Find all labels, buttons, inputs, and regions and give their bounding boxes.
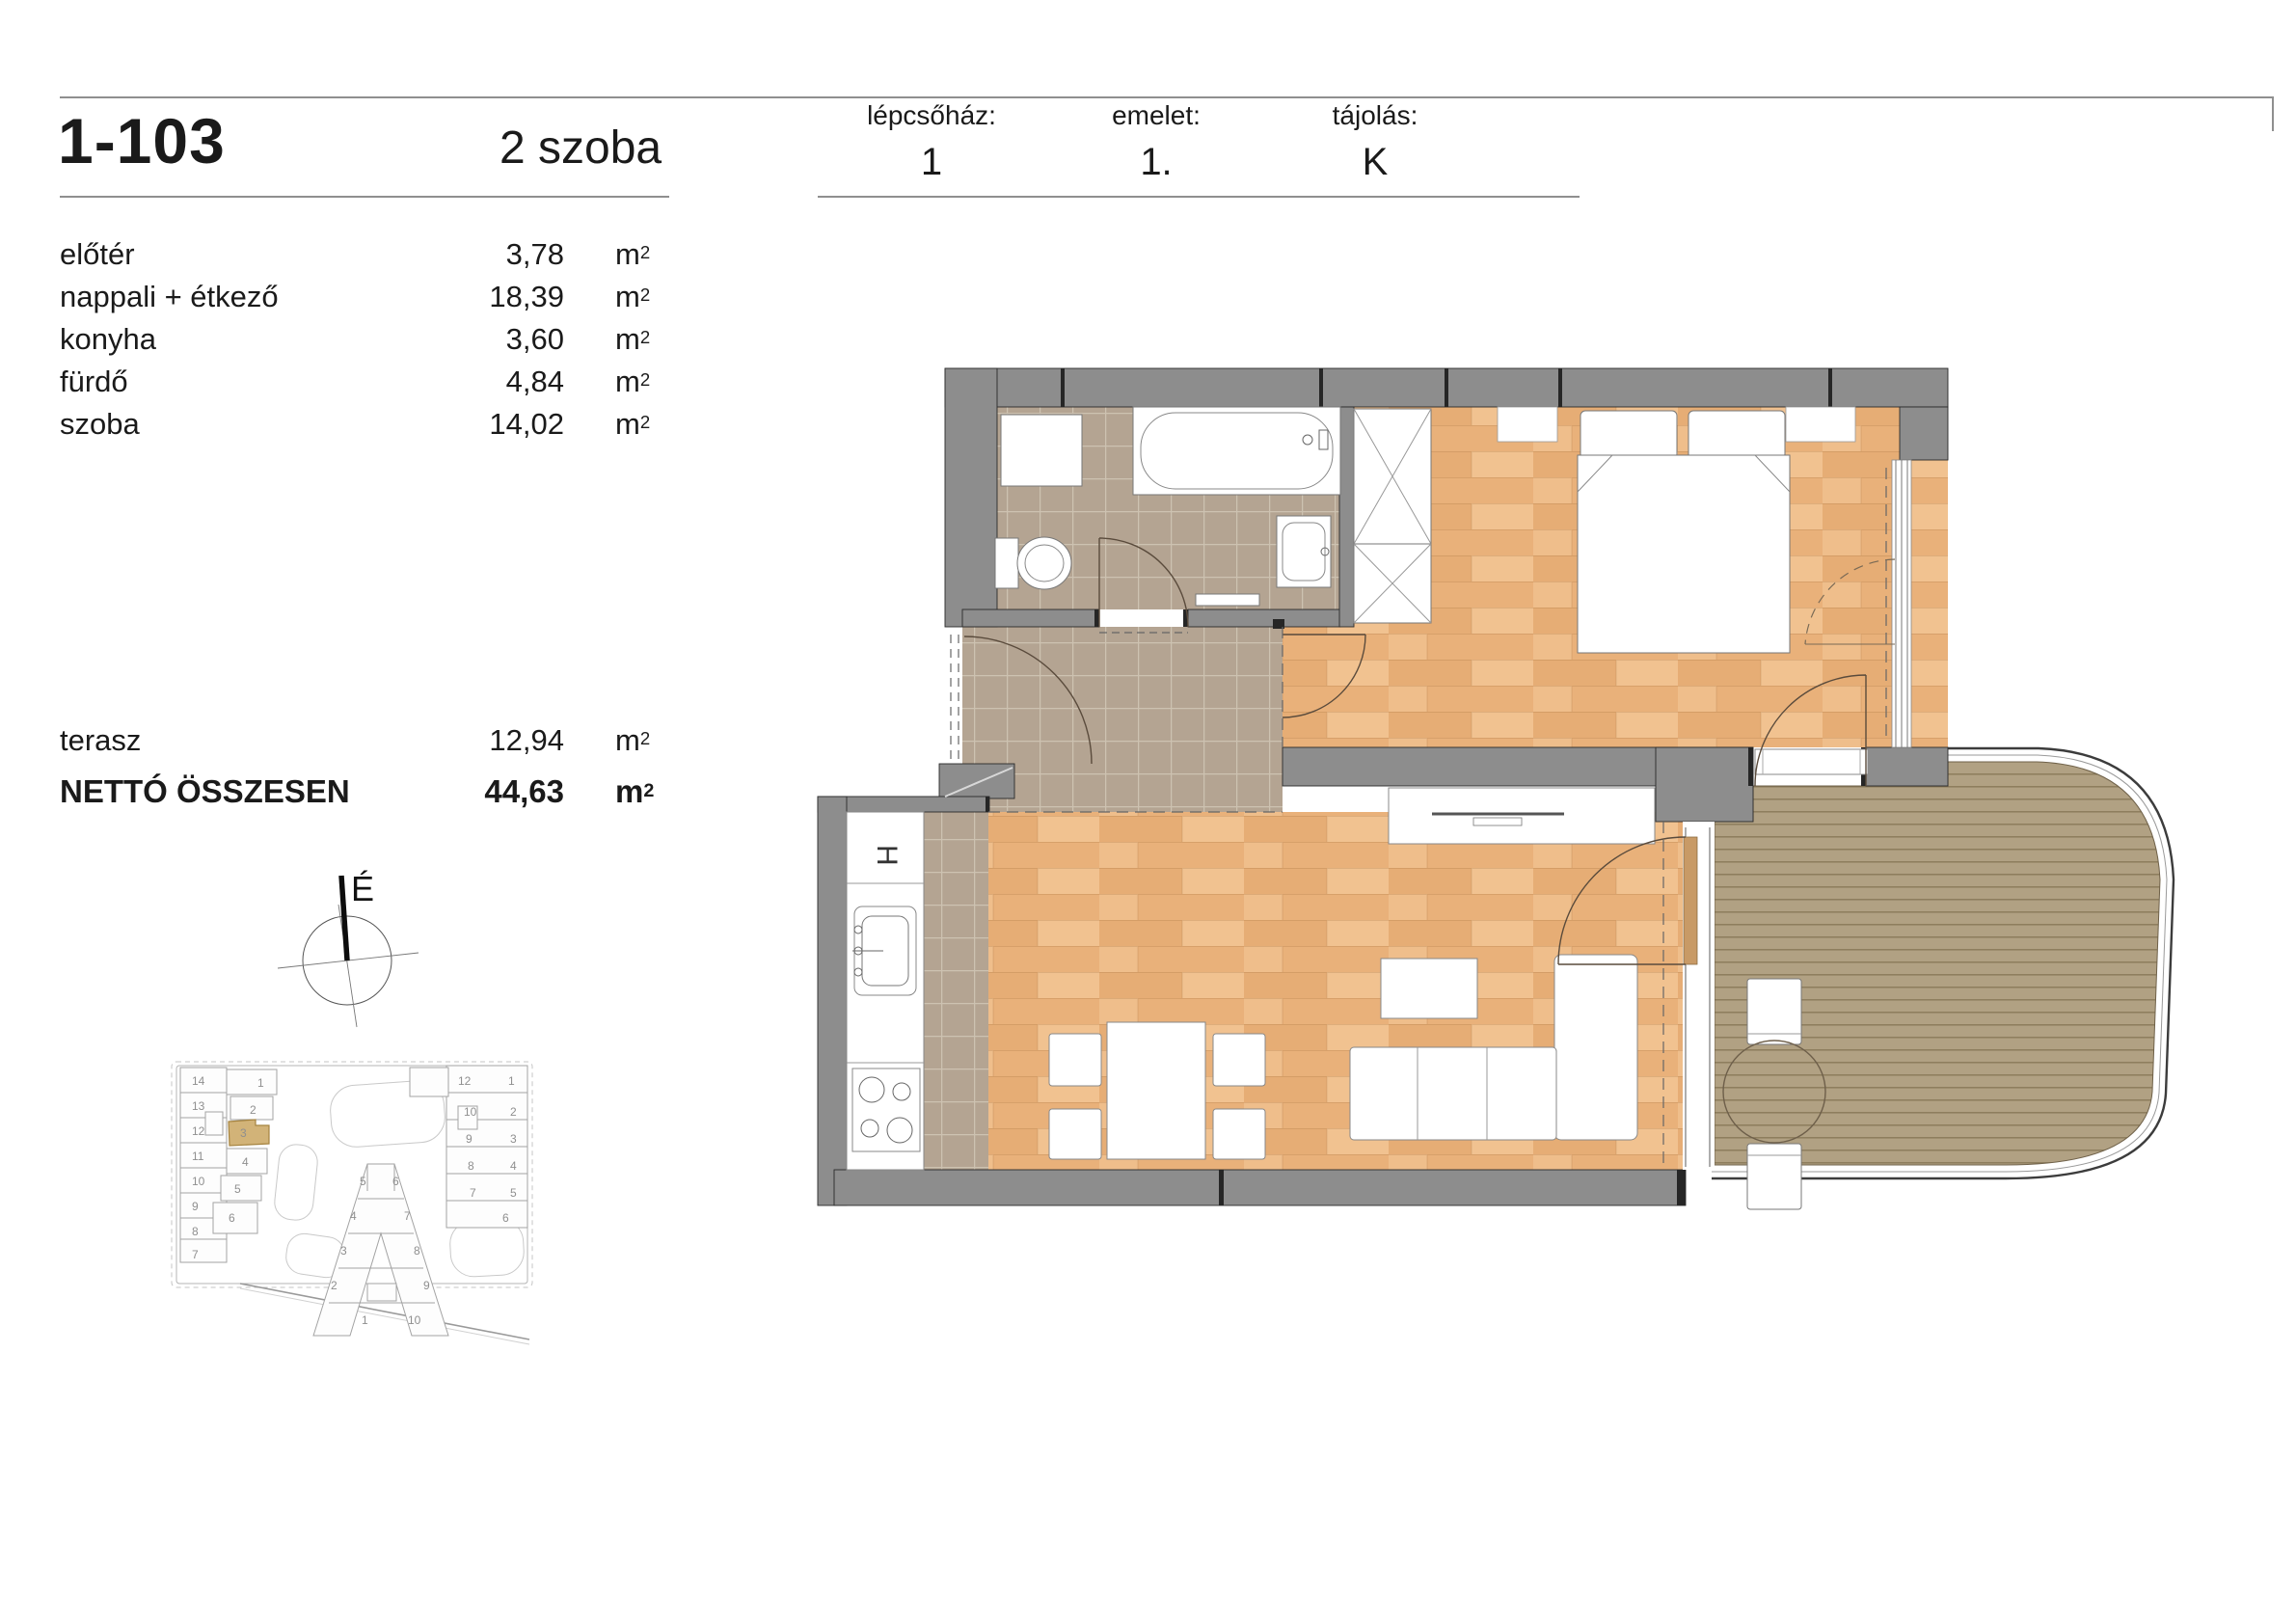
header-floor: emelet: 1. xyxy=(1040,100,1272,184)
wall-left-lower xyxy=(818,797,847,1205)
pillow-right xyxy=(1688,411,1785,459)
header-underline xyxy=(818,196,1580,198)
siteplan-minimap: 14 13 12 11 10 9 8 7 1 2 3 4 5 6 5 6 4 7… xyxy=(169,1056,540,1345)
room-area: 14,02 xyxy=(489,407,564,442)
unit-number: 2 xyxy=(510,1105,517,1119)
unit-base: m xyxy=(615,407,640,441)
unit-number: 12 xyxy=(458,1074,472,1088)
unit-base: m xyxy=(615,773,643,809)
room-count: 2 szoba xyxy=(500,122,662,175)
wall-bath-bottom-left xyxy=(962,609,1099,627)
unit-number: 7 xyxy=(470,1186,476,1200)
bedroom-terrace-threshold xyxy=(1755,749,1868,774)
top-rule xyxy=(60,96,2274,98)
terrace-row: terasz 12,94 m2 xyxy=(60,723,660,766)
compass-cross-v xyxy=(338,905,357,1027)
unit-number: 3 xyxy=(340,1244,347,1258)
unit-number: 10 xyxy=(464,1105,477,1119)
unit-sup: 2 xyxy=(640,728,650,748)
floor-label: emelet: xyxy=(1040,100,1272,131)
area-row: nappali + étkező 18,39 m2 xyxy=(60,280,660,322)
minimap-middle-building xyxy=(313,1164,448,1336)
room-unit: m2 xyxy=(615,407,650,442)
room-unit: m2 xyxy=(615,365,650,399)
unit-base: m xyxy=(615,365,640,398)
unit-number: 6 xyxy=(502,1211,509,1225)
unit-number: 3 xyxy=(240,1126,247,1140)
room-name: nappali + étkező xyxy=(60,280,279,314)
unit-sup: 2 xyxy=(640,284,650,305)
unit-number: 5 xyxy=(360,1175,366,1188)
unit-sup: 2 xyxy=(640,412,650,432)
room-area: 4,84 xyxy=(506,365,564,399)
unit-number: 1 xyxy=(362,1313,368,1327)
wall-bath-wardrobe-divider xyxy=(1339,407,1354,627)
unit-number: 9 xyxy=(192,1200,199,1213)
unit-number: 8 xyxy=(468,1159,474,1173)
orientation-value: K xyxy=(1259,141,1491,184)
unit-number: 4 xyxy=(242,1155,249,1169)
wall-bedroom-bottom-right xyxy=(1866,747,1948,786)
unit-number: 7 xyxy=(404,1209,411,1223)
north-label: É xyxy=(351,869,374,908)
tv-console xyxy=(1389,788,1655,844)
unit-number: 10 xyxy=(408,1313,421,1327)
washbasin xyxy=(1277,516,1331,587)
dining-chair xyxy=(1049,1034,1101,1086)
sofa-chaise xyxy=(1554,955,1637,1140)
bathtub xyxy=(1133,407,1340,495)
unit-sup: 2 xyxy=(640,369,650,390)
kitchen-floor xyxy=(924,812,988,1170)
area-row: előtér 3,78 m2 xyxy=(60,237,660,280)
room-area: 18,39 xyxy=(489,280,564,314)
kitchen-sink xyxy=(852,906,916,995)
unit-sup: 2 xyxy=(640,242,650,262)
total-unit: m2 xyxy=(615,773,654,810)
dining-table xyxy=(1107,1022,1205,1159)
title-underline xyxy=(60,196,669,198)
sofa-body xyxy=(1350,1047,1556,1140)
kitchen: H xyxy=(847,812,924,1170)
room-name: konyha xyxy=(60,322,156,357)
wall-bottom xyxy=(834,1170,1686,1205)
room-unit: m2 xyxy=(615,322,650,357)
terrace-chair xyxy=(1747,979,1801,1044)
floor-plan: H xyxy=(810,347,2256,1331)
wall-bath-bottom-right xyxy=(1188,609,1340,627)
unit-base: m xyxy=(615,237,640,271)
living-terrace-glazing xyxy=(1683,822,1715,1170)
coffee-table xyxy=(1381,959,1477,1018)
wall-bedroom-right-top xyxy=(1900,407,1948,460)
terrace-door-leaf xyxy=(1684,837,1697,964)
dining-chair xyxy=(1049,1109,1101,1159)
unit-number: 6 xyxy=(229,1211,235,1225)
room-name: előtér xyxy=(60,237,135,272)
bed-recess-left xyxy=(1498,407,1557,442)
floor-value: 1. xyxy=(1040,141,1272,184)
terrace-deck xyxy=(1715,762,2160,1165)
bedroom-window xyxy=(1892,460,1911,747)
tv-stand xyxy=(1473,818,1522,825)
unit-number: 4 xyxy=(350,1209,357,1223)
unit-number: 7 xyxy=(192,1248,199,1261)
area-row: szoba 14,02 m2 xyxy=(60,407,660,449)
mattress xyxy=(1578,455,1790,653)
staircase-label: lépcsőház: xyxy=(816,100,1047,131)
minimap-right-building xyxy=(410,1066,527,1228)
bed-recess-right xyxy=(1786,407,1855,442)
dining-chair xyxy=(1213,1034,1265,1086)
north-compass: É xyxy=(270,856,444,1040)
unit-base: m xyxy=(615,723,640,757)
toilet xyxy=(995,537,1071,589)
unit-sup: 2 xyxy=(640,327,650,347)
area-row: fürdő 4,84 m2 xyxy=(60,365,660,407)
unit-number: 8 xyxy=(192,1225,199,1238)
unit-number: 1 xyxy=(508,1074,515,1088)
unit-number: 5 xyxy=(234,1182,241,1196)
room-name: fürdő xyxy=(60,365,128,399)
pillow-left xyxy=(1580,411,1677,459)
washing-machine xyxy=(1001,415,1082,486)
unit-base: m xyxy=(615,322,640,356)
terrace-chair xyxy=(1747,1144,1801,1209)
unit-base: m xyxy=(615,280,640,313)
room-unit: m2 xyxy=(615,280,650,314)
unit-number: 1 xyxy=(257,1076,264,1090)
unit-number: 12 xyxy=(192,1124,205,1138)
unit-number: 13 xyxy=(192,1099,205,1113)
header-staircase: lépcsőház: 1 xyxy=(816,100,1047,184)
unit-sup: 2 xyxy=(643,780,654,801)
room-area: 3,60 xyxy=(506,322,564,357)
unit-number: 14 xyxy=(192,1074,205,1088)
unit-number: 4 xyxy=(510,1159,517,1173)
room-area: 3,78 xyxy=(506,237,564,272)
total-name: NETTÓ ÖSSZESEN xyxy=(60,773,350,810)
header-orientation: tájolás: K xyxy=(1259,100,1491,184)
room-name: szoba xyxy=(60,407,140,442)
unit-number: 3 xyxy=(510,1132,517,1146)
unit-number: 9 xyxy=(423,1279,430,1292)
unit-number: 11 xyxy=(192,1150,204,1163)
minimap-highlight-unit xyxy=(229,1120,269,1146)
fridge-symbol: H xyxy=(871,845,903,866)
room-name: terasz xyxy=(60,723,141,758)
wall-left xyxy=(945,368,997,627)
room-area: 12,94 xyxy=(489,723,564,758)
unit-number: 8 xyxy=(414,1244,420,1258)
unit-number: 6 xyxy=(392,1175,399,1188)
entry-door-dashed xyxy=(951,635,959,764)
wall-terrace-block xyxy=(1656,747,1753,822)
unit-number: 2 xyxy=(250,1103,257,1117)
unit-number: 10 xyxy=(192,1175,205,1188)
north-needle xyxy=(341,876,347,960)
orientation-label: tájolás: xyxy=(1259,100,1491,131)
dining-chair xyxy=(1213,1109,1265,1159)
stove xyxy=(852,1068,920,1151)
area-row: konyha 3,60 m2 xyxy=(60,322,660,365)
room-unit: m2 xyxy=(615,723,650,758)
total-row: NETTÓ ÖSSZESEN 44,63 m2 xyxy=(60,773,660,816)
room-unit: m2 xyxy=(615,237,650,272)
total-area: 44,63 xyxy=(484,773,564,810)
top-rule-end-tick xyxy=(2272,96,2274,131)
unit-id: 1-103 xyxy=(58,104,226,177)
floorplan-sheet: 1-103 2 szoba lépcsőház: 1 emelet: 1. tá… xyxy=(0,0,2296,1623)
staircase-value: 1 xyxy=(816,141,1047,184)
unit-number: 5 xyxy=(510,1186,517,1200)
wardrobe xyxy=(1354,409,1431,623)
unit-number: 2 xyxy=(331,1279,338,1292)
unit-number: 9 xyxy=(466,1132,473,1146)
bath-rug xyxy=(1196,594,1259,606)
